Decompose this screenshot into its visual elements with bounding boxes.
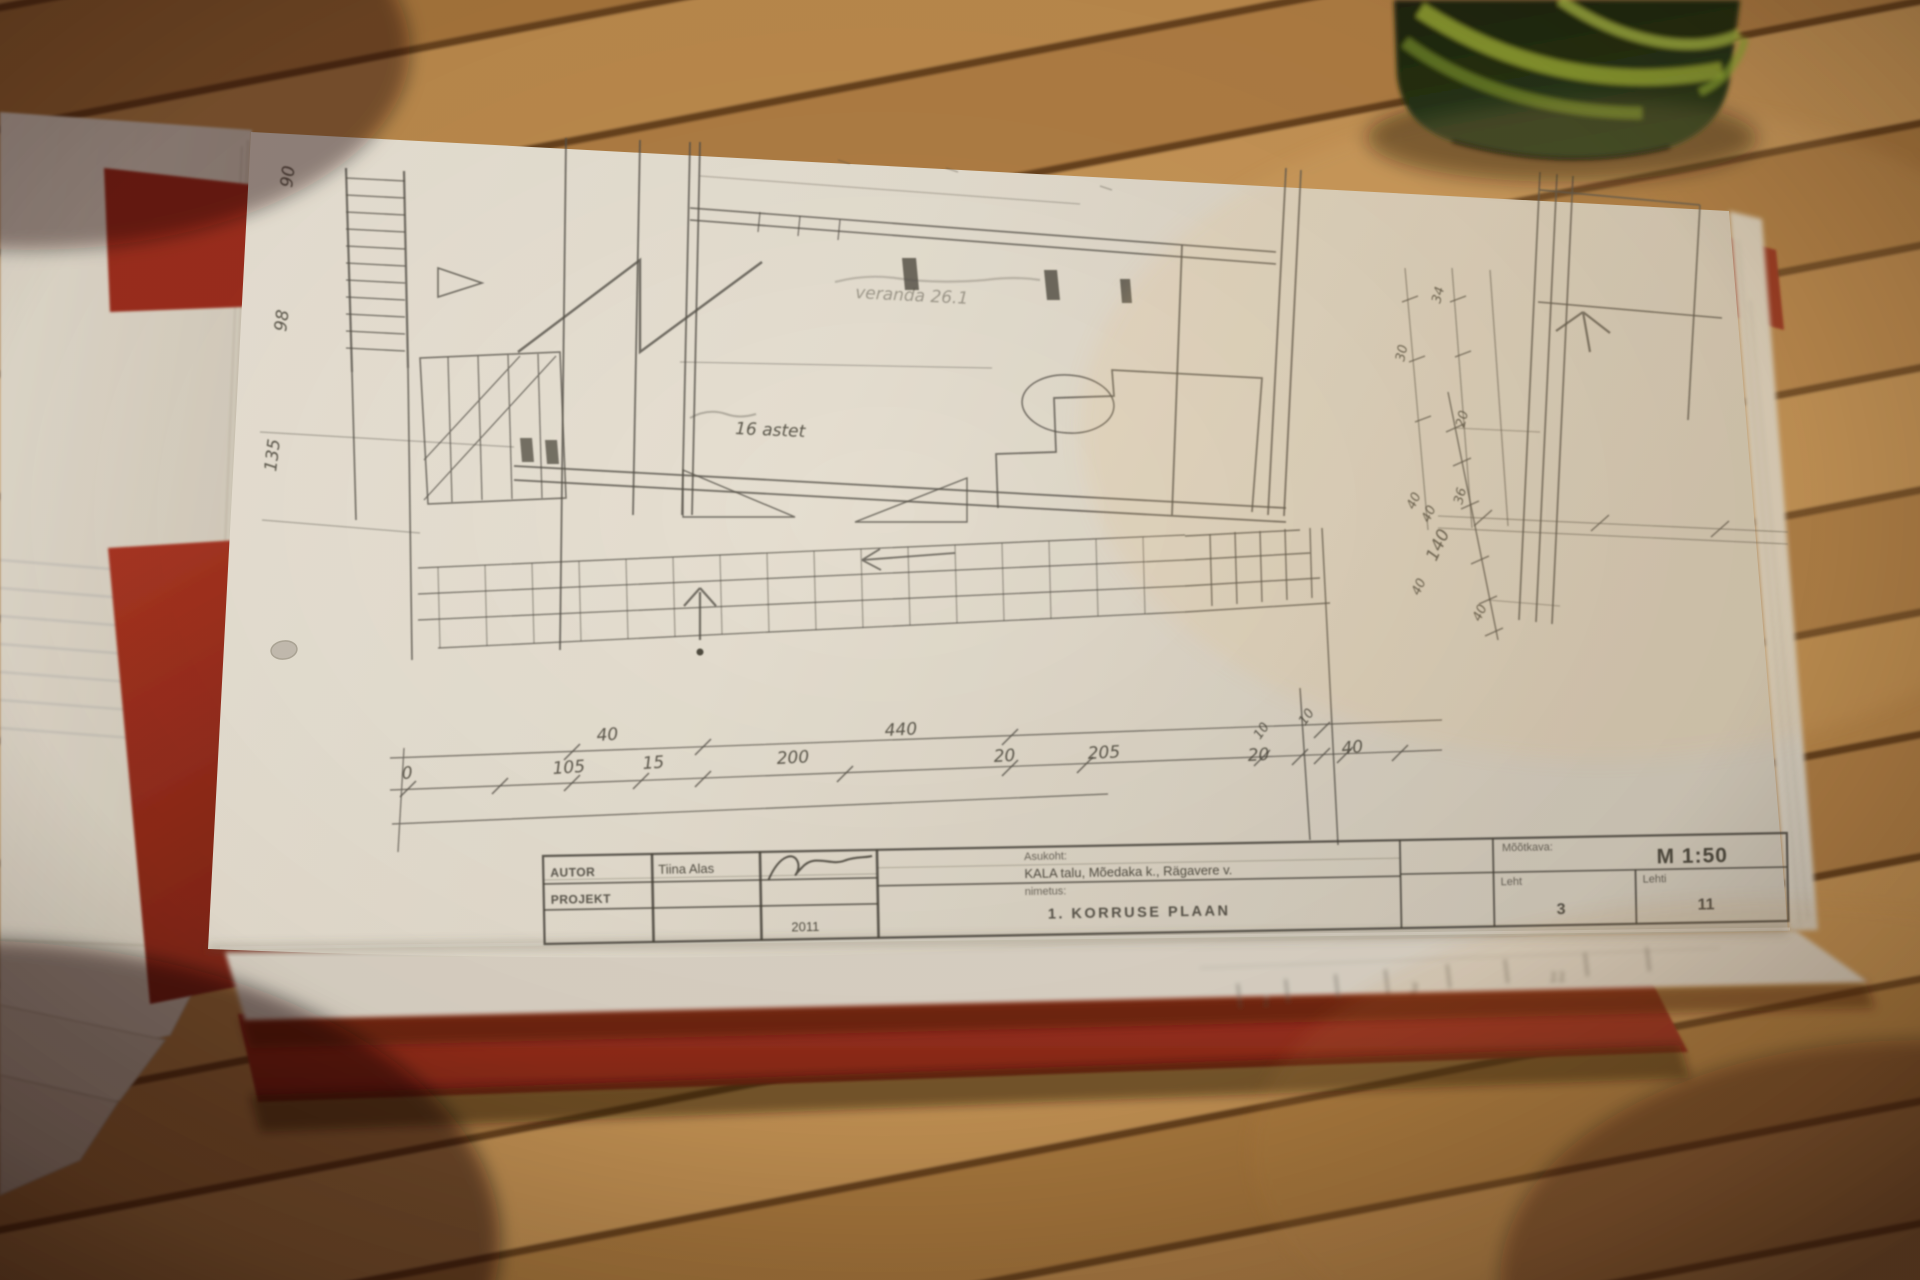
- photo-of-blueprint-on-table: 1 3 11: [0, 0, 1920, 1280]
- lighting-overlays: [0, 0, 1920, 1280]
